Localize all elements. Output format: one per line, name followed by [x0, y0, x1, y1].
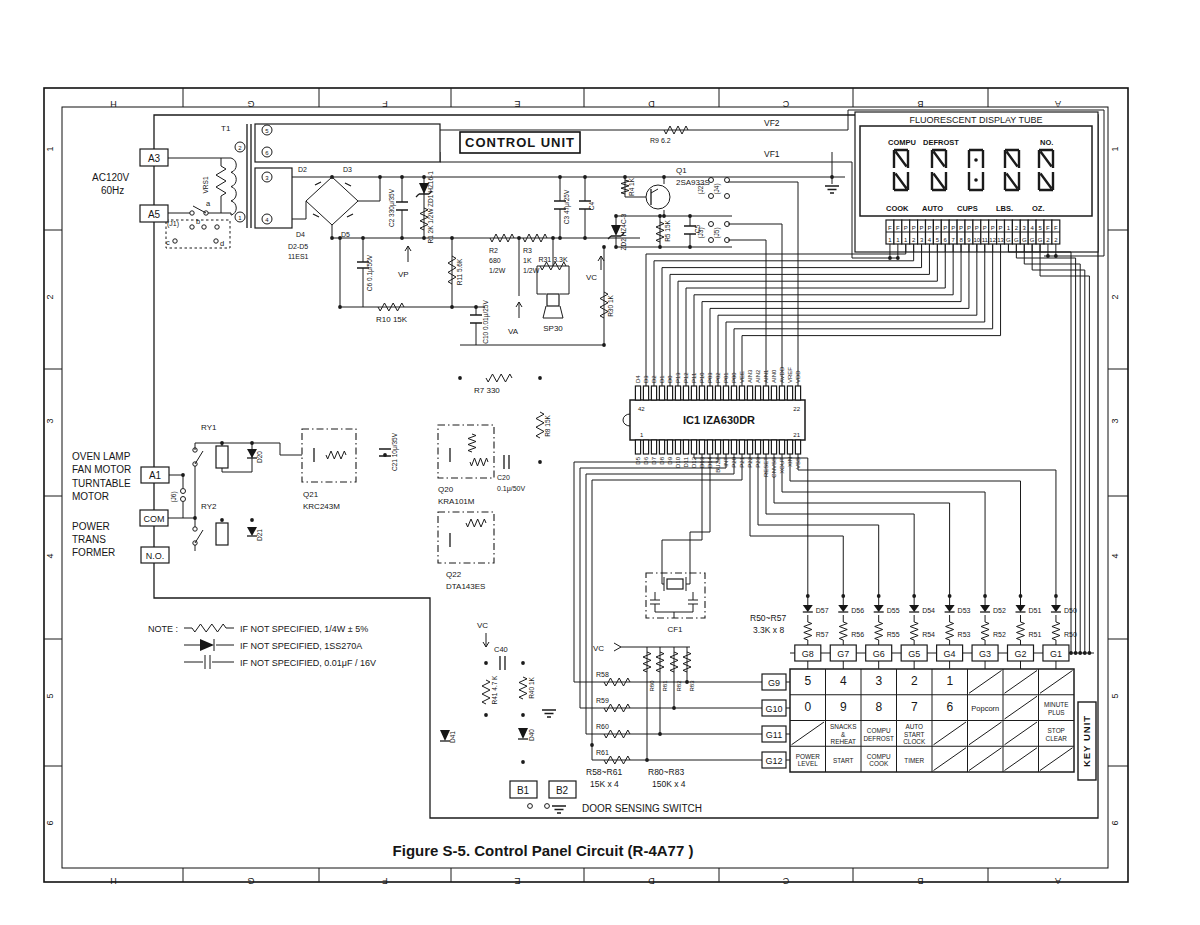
key-cell-label: 5	[804, 674, 811, 688]
key-cell-label: 4	[840, 674, 847, 688]
d21-label: D21	[256, 529, 263, 541]
key-cell-label: CLEAR	[1046, 735, 1068, 742]
ic-pin-stub	[667, 386, 672, 400]
ic-pin-label-bottom: D11	[683, 456, 689, 467]
ground-icon	[825, 186, 839, 193]
r58-label: R58	[596, 671, 609, 678]
junction-dot	[602, 343, 606, 347]
ic-pin-stub	[683, 440, 688, 454]
load-3: TURNTABLE	[72, 478, 131, 489]
zone-letter-top: G	[247, 99, 254, 109]
zone-letter-bottom: A	[1055, 876, 1061, 886]
junction-dot	[330, 175, 334, 179]
junction-dot	[521, 760, 525, 764]
bundle-wire	[1040, 244, 1089, 653]
zone-letter-bottom: F	[382, 876, 388, 886]
g-terminal-label: G3	[979, 649, 991, 659]
junction-dot	[220, 518, 224, 522]
resistor	[326, 451, 346, 459]
r7-label: R7 330	[474, 386, 500, 395]
g-terminal-label: G5	[908, 649, 920, 659]
c21-label: C21 10μ/35V	[391, 432, 399, 471]
ic-pin-stub	[707, 386, 712, 400]
display-pin-top: P	[983, 225, 987, 231]
ic-pin21: 21	[793, 432, 800, 438]
q21-part: KRC243M	[303, 502, 340, 511]
ic-pin22: 22	[793, 406, 800, 412]
ic-pin-stub	[779, 386, 784, 400]
schematic-drawing: HHGGFFEEDDCCBBAA112233445566 5 6 3 4 2 1…	[0, 0, 1200, 925]
zone-letter-top: H	[110, 99, 117, 109]
display-pin-top: P	[943, 225, 947, 231]
c10-label: C10 0.01μ/25V	[482, 300, 490, 344]
ic-notch	[623, 414, 630, 426]
display-pin-bottom: 11	[982, 237, 989, 243]
junction-dot	[896, 256, 900, 260]
ic-pin-stub	[675, 386, 680, 400]
diode	[1016, 605, 1026, 612]
resistor	[482, 680, 490, 704]
junction-dot	[614, 214, 618, 218]
ry2-label: RY2	[201, 502, 217, 511]
junction-dot	[688, 245, 692, 249]
pt-1: POWER	[72, 521, 110, 532]
test-point-arrow	[516, 302, 522, 318]
q1-legs	[651, 189, 658, 193]
junction-dot	[538, 376, 542, 380]
zone-letter-top: F	[382, 99, 388, 109]
resistor	[1017, 622, 1025, 640]
connector-j1: (J1)	[167, 220, 179, 228]
zone-number-right: 6	[1110, 820, 1120, 825]
display-pin-top: P	[991, 225, 995, 231]
va-label: VA	[508, 327, 519, 336]
resistor	[523, 234, 547, 242]
resistor	[486, 374, 512, 382]
ic-pin-stub	[691, 440, 696, 454]
junction-dot	[220, 441, 224, 445]
display-pin-top: P	[975, 225, 979, 231]
junction-dot	[558, 236, 562, 240]
key-cell-label: LEVEL	[798, 760, 818, 767]
junction-dot	[338, 305, 342, 309]
capacitor	[504, 455, 509, 469]
contact-d: d	[220, 239, 224, 248]
vc-arrow	[614, 643, 621, 651]
control-unit-title: CONTROL UNIT	[465, 135, 575, 150]
key-cell-label: TIMER	[904, 757, 924, 764]
zone-letter-top: C	[782, 99, 789, 109]
ic-pin-stub	[659, 440, 664, 454]
annunciator-oz: OZ.	[1032, 204, 1045, 213]
junction-dot	[602, 245, 606, 249]
display-pin-top: P	[967, 225, 971, 231]
resistor	[378, 303, 404, 311]
junction-dot	[517, 236, 521, 240]
resistor	[604, 704, 630, 712]
c20-label: C20	[497, 474, 510, 481]
key-unit: D57R57G8D56R56G7D55R55G6D54R54G5D53R53G4…	[604, 594, 1077, 772]
j4-label: (J4)	[713, 183, 721, 194]
display-pin-bottom: 10	[974, 237, 981, 243]
key-cell-label: PLUS	[1048, 709, 1065, 716]
ladder-diode-label: D54	[922, 607, 935, 614]
ic-pin-stub	[787, 386, 792, 400]
ic-pin-stub	[651, 440, 656, 454]
ic-pin-stub	[755, 440, 760, 454]
junction-dot	[1078, 651, 1082, 655]
resistor	[981, 622, 989, 640]
j2-label: (J2)	[697, 183, 705, 194]
q22-label: Q22	[446, 570, 462, 579]
diode	[909, 605, 919, 612]
junction-dot	[658, 732, 662, 736]
resistor	[910, 622, 918, 640]
g-row-label: G11	[766, 730, 782, 740]
bundle-wire	[1016, 244, 1075, 653]
zone-number-left: 1	[45, 146, 55, 151]
key-cell-label: MINUTE	[1044, 701, 1069, 708]
r2-value: 680	[489, 257, 501, 264]
resistor	[490, 234, 514, 242]
display-pin-top: P	[920, 225, 924, 231]
g-terminal-label: G6	[873, 649, 885, 659]
zone-letter-top: D	[648, 99, 655, 109]
c40-label: C40	[494, 645, 508, 654]
terminal-a5-label: A5	[148, 209, 161, 220]
annunciator-no: NO.	[1040, 138, 1053, 147]
diode	[1051, 605, 1061, 612]
bridge-d2: D2	[298, 166, 307, 173]
ic-pin-stub	[723, 440, 728, 454]
note-line-2: IF NOT SPECIFIED, 1SS270A	[240, 641, 362, 651]
zone-number-left: 5	[45, 693, 55, 698]
key-cell-label: 8	[875, 700, 882, 714]
ic-pin-label-bottom: D9	[667, 456, 673, 464]
junction-dot	[658, 245, 662, 249]
r80-label: R80	[649, 680, 655, 692]
g-terminal-label: G1	[1050, 649, 1062, 659]
ic-pin-stub	[731, 440, 736, 454]
zone-number-left: 6	[45, 820, 55, 825]
resistor	[683, 652, 691, 672]
ic-pin-stub	[731, 386, 736, 400]
junction-dot	[193, 516, 197, 520]
junction-dot	[614, 245, 618, 249]
contact-b: b	[196, 217, 200, 226]
t1-pin1: 1	[238, 215, 242, 221]
bridge-rectifier: D2 D3 D4 D5 D2-D5 11ES1	[288, 166, 353, 260]
door-switch-pin	[545, 804, 550, 809]
q20-box	[438, 425, 494, 478]
r10-label: R10 15K	[376, 315, 408, 324]
r50-57-value: 3.3K x 8	[753, 625, 784, 635]
display-pin-top: F	[888, 225, 892, 231]
key-cell-label: START	[833, 757, 853, 764]
ic-pin-stub	[755, 386, 760, 400]
key-cell-label: 3	[875, 674, 882, 688]
ic-pin-stub	[787, 440, 792, 454]
vf2-label: VF2	[764, 118, 780, 128]
ic-name: IC1 IZA630DR	[683, 414, 755, 426]
ic-pin-stub	[667, 440, 672, 454]
figure-caption: Figure S-5. Control Panel Circuit (R-4A7…	[393, 842, 694, 859]
display-pin-top: F	[896, 225, 900, 231]
display-pin-top: P	[935, 225, 939, 231]
door-switch-pin	[528, 804, 533, 809]
capacitor	[500, 656, 505, 670]
sp30-label: SP30	[543, 324, 563, 333]
d20-label: D20	[256, 451, 263, 463]
ac-frequency: 60Hz	[101, 185, 124, 196]
ic-pin-stub	[779, 440, 784, 454]
key-cell-label: SNACKS	[830, 723, 856, 730]
junction-dot	[400, 175, 404, 179]
junction-dot	[521, 661, 525, 665]
junction-dot	[685, 680, 689, 684]
r80-83-group: R80~R83	[648, 767, 684, 777]
display-pin-bottom: G	[1014, 237, 1019, 243]
key-cell-label: START	[904, 731, 924, 738]
g-terminal-label: G7	[837, 649, 849, 659]
ladder-diode-label: D53	[958, 607, 971, 614]
zone-letter-bottom: D	[648, 876, 655, 886]
r9-label: R9 6.2	[650, 137, 671, 144]
junction-dot	[400, 236, 404, 240]
note-line-1: IF NOT SPECIFIED, 1/4W ± 5%	[240, 624, 368, 634]
ic-pin-label-bottom: D7	[651, 456, 657, 464]
note-title: NOTE :	[148, 624, 178, 634]
junction-dot	[484, 661, 488, 665]
key-cell-label: CLOCK	[903, 738, 926, 745]
ladder-resistor-label: R55	[887, 631, 900, 638]
key-cell-label: REHEAT	[831, 738, 857, 745]
resistor	[656, 222, 664, 242]
ic-pin-label-top: AIN0	[771, 369, 777, 383]
test-point-arrow	[405, 246, 411, 262]
resistor	[604, 678, 630, 686]
relay-contacts	[193, 446, 228, 545]
junction-dot	[688, 214, 692, 218]
sp30-cone	[543, 306, 563, 318]
ladder-resistor-label: R53	[958, 631, 971, 638]
diode	[838, 605, 848, 612]
junction-dot	[888, 256, 892, 260]
ic-pin-label-bottom: BUZZ	[715, 457, 721, 473]
key-cell-label: AUTO	[905, 723, 923, 730]
ic-pin-stub	[763, 440, 768, 454]
key-cell-label: COMPU	[867, 753, 891, 760]
junction-dot	[558, 175, 562, 179]
ic-pin-label-top: VDD	[795, 370, 801, 383]
junction-dot	[484, 713, 488, 717]
junction-dot	[623, 175, 627, 179]
junction-dot	[672, 706, 676, 710]
ic-pin-stub	[635, 440, 640, 454]
terminal-a1-label: A1	[149, 470, 162, 481]
cf1-crystal	[667, 579, 683, 589]
r2-watt: 1/2W	[489, 267, 506, 274]
diode	[980, 605, 990, 612]
ladder-resistor-label: R54	[922, 631, 935, 638]
note-block: NOTE : IF NOT SPECIFIED, 1/4W ± 5% IF NO…	[148, 624, 376, 669]
ic-pin-stub	[771, 386, 776, 400]
ic-pin-stub	[795, 386, 800, 400]
junction-dot	[1088, 651, 1092, 655]
junction-dot	[330, 236, 334, 240]
display-pin-stub	[890, 252, 1056, 258]
vc-down-arrow	[483, 633, 489, 647]
bundle-wire	[718, 244, 977, 386]
ry1-label: RY1	[201, 423, 217, 432]
d41-label: D41	[449, 731, 456, 743]
annunciator-compu: COMPU	[888, 138, 916, 147]
r30-label: R30 1K	[607, 294, 614, 316]
diode	[518, 728, 528, 739]
r81-label: R81	[662, 680, 668, 692]
resistor	[839, 622, 847, 640]
ic-pin-stub	[683, 386, 688, 400]
resistor	[519, 677, 527, 699]
annunciator-lbs: LBS.	[996, 204, 1013, 213]
r5-label: R5 15K	[664, 219, 671, 241]
bridge-name: D2-D5	[288, 243, 308, 250]
junction-dot	[378, 175, 382, 179]
bridge-part: 11ES1	[288, 253, 309, 260]
ic-pin-stub	[651, 386, 656, 400]
key-cell-label: 7	[911, 700, 918, 714]
resistor	[656, 652, 664, 672]
junction-dot	[361, 236, 365, 240]
door-switch-label: DOOR SENSING SWITCH	[582, 803, 702, 814]
ic-pin-stub	[691, 386, 696, 400]
annunciator-auto: AUTO	[922, 204, 943, 213]
r11-label: R11 5.6K	[456, 258, 463, 285]
key-cell-label: STOP	[1048, 727, 1065, 734]
ic-pin-stub	[747, 386, 752, 400]
c6-label: C6 0.1μ/50V	[366, 254, 374, 291]
ic-pin-label-top: AIN1	[763, 369, 769, 383]
resistor	[448, 256, 456, 284]
junction-dot	[250, 518, 254, 522]
ladder-resistor-label: R51	[1029, 631, 1042, 638]
ic-pin-stub	[659, 386, 664, 400]
zone-number-right: 3	[1110, 418, 1120, 423]
ladder-diode-label: D55	[887, 607, 900, 614]
ac-voltage: AC120V	[92, 172, 130, 183]
note-line-3: IF NOT SPECIFIED, 0.01μF / 16V	[240, 658, 376, 668]
junction-dot	[662, 175, 666, 179]
ic-pin-label-top: AIN3	[747, 369, 753, 383]
zone-number-left: 4	[45, 553, 55, 558]
diode	[803, 605, 813, 612]
ic-pin-label-bottom: D8	[659, 456, 665, 464]
key-cell-label: 2	[911, 674, 918, 688]
contact-c: c	[166, 238, 170, 247]
ic-pin-stub	[635, 386, 640, 400]
junction-dot	[590, 743, 594, 747]
ladder-resistor-label: R57	[816, 631, 829, 638]
ic-pin-stub	[707, 440, 712, 454]
junction-dot	[830, 175, 834, 179]
junction-dot	[338, 236, 342, 240]
ic-pin-stub	[739, 386, 744, 400]
r40-label: R40 1K	[528, 676, 535, 698]
ground-icon	[542, 710, 556, 717]
annunciator-cook: COOK	[886, 204, 909, 213]
junction-dot	[383, 453, 387, 457]
c3-label: C3 47μ/25V	[563, 189, 571, 224]
ic-pin-stub	[715, 440, 720, 454]
sp30-speaker	[547, 294, 559, 306]
diode	[874, 605, 884, 612]
junction-dot	[662, 214, 666, 218]
resistor	[804, 622, 812, 640]
resistor	[536, 412, 544, 438]
d40-label: D40	[528, 729, 535, 741]
capacitor	[396, 202, 408, 210]
ic-pin-stub	[675, 440, 680, 454]
zone-letter-bottom: E	[514, 876, 520, 886]
display-pin-bottom: G	[1006, 237, 1011, 243]
zone-number-right: 4	[1110, 553, 1120, 558]
display-title: FLUORESCENT DISPLAY TUBE	[910, 115, 1043, 125]
zd2-label: ZD2 HZ4C-3	[620, 213, 627, 250]
resistor	[664, 126, 688, 134]
junction-dot	[450, 236, 454, 240]
q1-transistor	[646, 185, 670, 209]
r3-name: R3	[523, 247, 532, 254]
ladder-resistor-label: R56	[851, 631, 864, 638]
junction-dot	[583, 175, 587, 179]
zone-number-left: 3	[45, 418, 55, 423]
connectors-j2345: (J2) (J4) (J3) (J5)	[697, 178, 730, 243]
annunciator-cups: CUPS	[957, 204, 978, 213]
terminal-b2-label: B2	[556, 785, 569, 796]
r50-57-group: R50~R57	[750, 613, 786, 623]
resistor	[192, 624, 226, 632]
g-row-label: G10	[765, 704, 782, 714]
display-pin-top: P	[999, 225, 1003, 231]
junction-dot	[521, 713, 525, 717]
display-pin-bottom: G	[1022, 237, 1027, 243]
g-row-label: G9	[768, 678, 780, 688]
display-pin-top: F	[1054, 225, 1058, 231]
terminal-com-label: COM	[144, 514, 165, 524]
ic-pin-label-top: AVDD	[779, 366, 785, 383]
q22-part: DTA143ES	[446, 582, 485, 591]
zone-number-right: 1	[1110, 146, 1120, 151]
load-1: OVEN LAMP	[72, 451, 131, 462]
resistor	[670, 652, 678, 672]
display-pin-top: P	[927, 225, 931, 231]
g-row-label: G12	[765, 756, 782, 766]
zone-letter-bottom: G	[247, 876, 254, 886]
ic-pin-label-bottom: D6	[643, 456, 649, 464]
key-cell-label: &	[841, 731, 846, 738]
vc-label: VC	[586, 273, 597, 282]
junction-dot	[1083, 651, 1087, 655]
r83-label: R83	[689, 680, 695, 692]
ic-pin-stub	[699, 386, 704, 400]
zone-letter-top: A	[1055, 99, 1061, 109]
ladder-resistor-label: R52	[993, 631, 1006, 638]
t1-label: T1	[221, 124, 231, 133]
key-cell-label: POWER	[796, 753, 821, 760]
vc-bottom-label: VC	[477, 621, 488, 630]
junction-dot	[551, 236, 555, 240]
annunciator-defrost: DEFROST	[923, 138, 959, 147]
